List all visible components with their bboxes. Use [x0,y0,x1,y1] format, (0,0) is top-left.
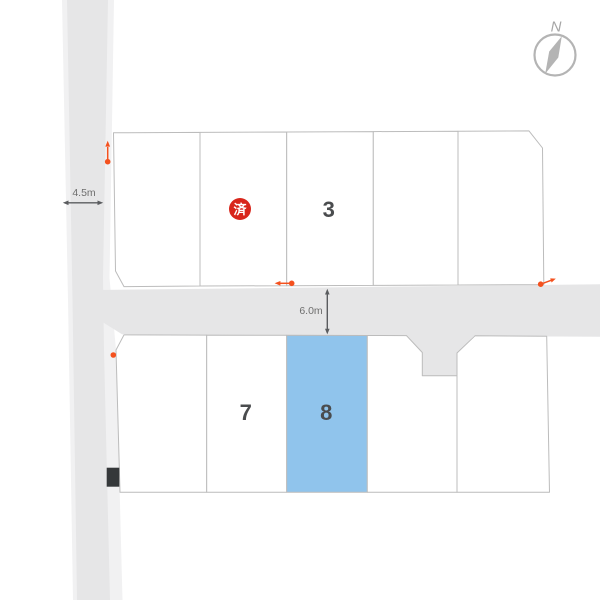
lot-7-label: 7 [240,400,253,426]
site-plan: N 4.5m 6.0m 3 7 8 済 [0,0,600,600]
left-road-width-label: 4.5m [72,187,95,199]
lot-lower-5[interactable] [457,336,550,493]
main-road-width-label: 6.0m [299,305,322,317]
site-plan-canvas [0,0,600,600]
lot-upper-4[interactable] [373,131,458,285]
lot-8-label: 8 [320,400,333,426]
compass [535,35,576,76]
lot-upper-1[interactable] [114,132,201,286]
compass-north-label: N [551,19,562,36]
compass-needle-icon [545,36,562,74]
sold-stamp-badge: 済 [229,198,251,220]
lot-3-label: 3 [323,197,336,223]
horizontal-road [96,284,600,336]
lot-lower-1[interactable] [116,335,207,492]
sold-stamp-text: 済 [233,203,246,216]
utility-pole-marker [107,468,120,487]
lot-upper-5[interactable] [458,131,544,285]
roads [62,0,600,600]
marker-lower-left [111,352,117,358]
